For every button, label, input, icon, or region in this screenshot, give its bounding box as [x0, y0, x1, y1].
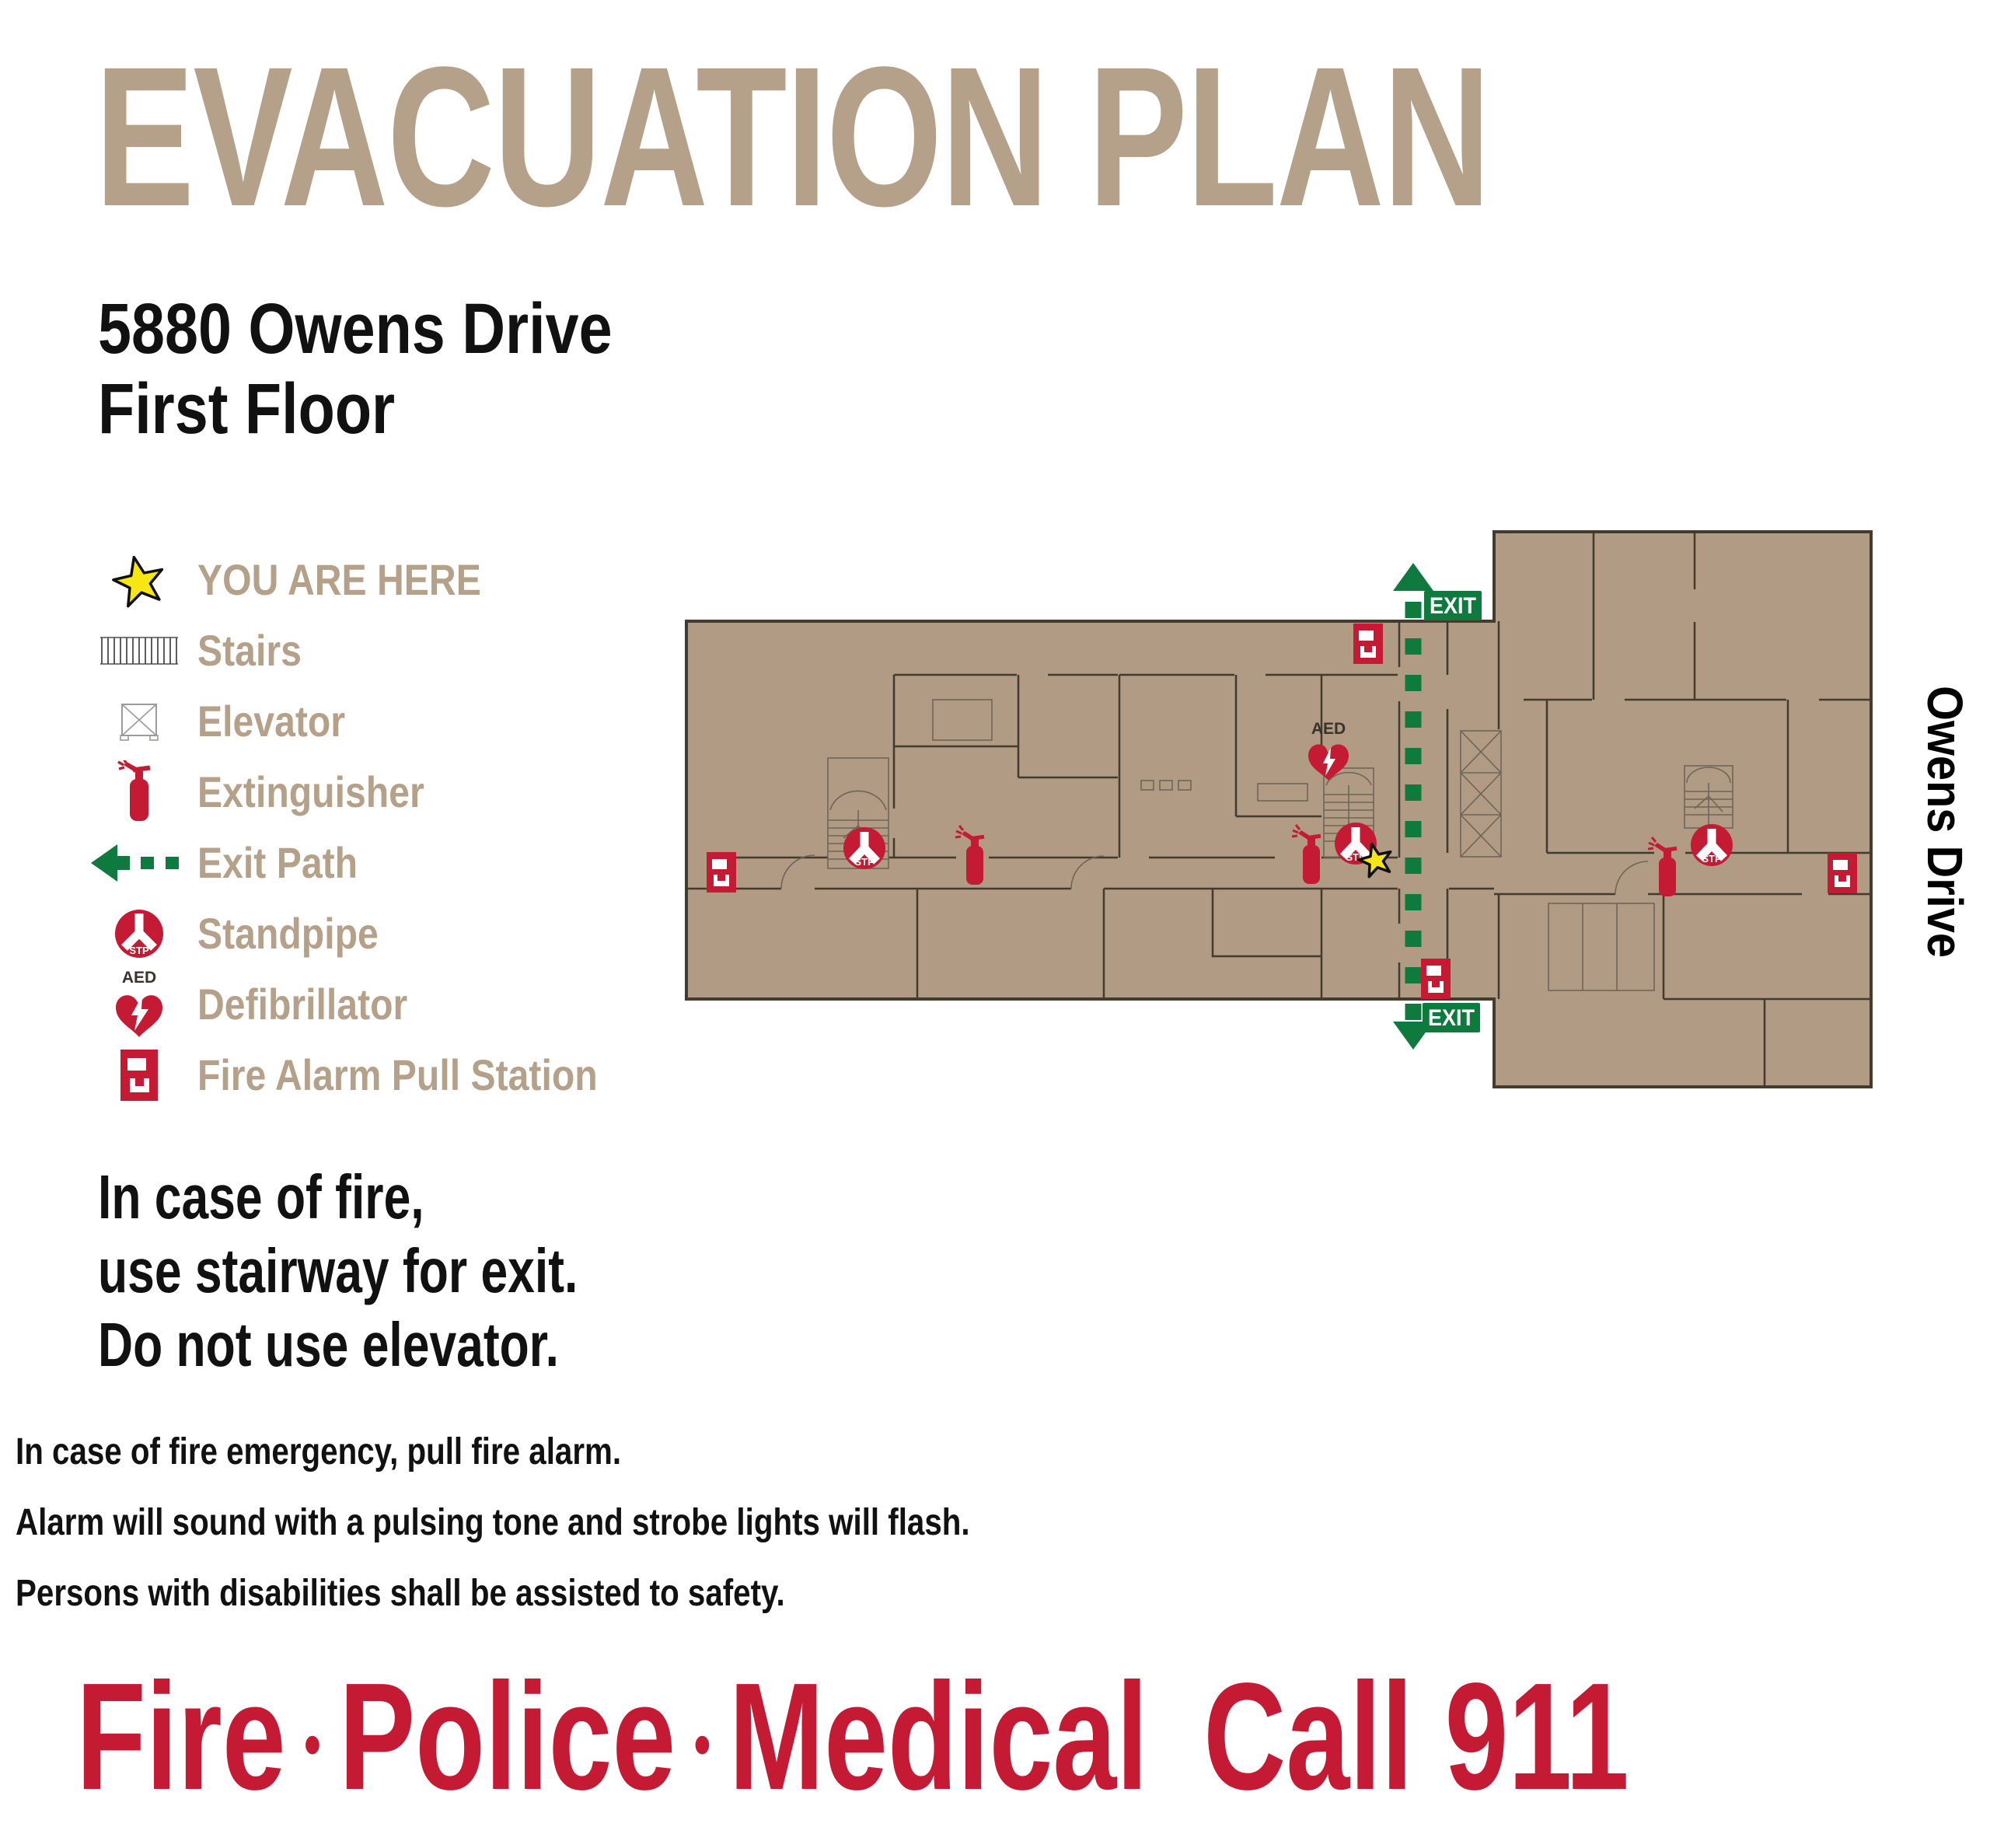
evacuation-plan-poster: EVACUATION PLAN 5880 Owens Drive First F… [0, 0, 1990, 1848]
building-outline [686, 532, 1871, 1087]
exit-sign: EXIT [1423, 1003, 1480, 1032]
extinguisher-icon [81, 760, 197, 824]
exit-path-icon [81, 843, 197, 883]
exit-sign-label: EXIT [1430, 593, 1476, 619]
address-line1: 5880 Owens Drive [98, 289, 613, 369]
legend-label: Exit Path [197, 841, 358, 885]
legend-label: Elevator [197, 700, 345, 743]
exit-sign: EXIT [1424, 591, 1482, 620]
headline-line: Do not use elevator. [98, 1308, 559, 1382]
aed-label: AED [1311, 720, 1346, 738]
standpipe-icon: STP [81, 907, 197, 960]
address-block: 5880 Owens Drive First Floor [98, 289, 710, 449]
headline-line: use stairway for exit. [98, 1234, 578, 1308]
aed-label: AED [122, 969, 156, 987]
safety-notes: In case of fire emergency, pull fire ala… [16, 1417, 1151, 1629]
legend-label: Stairs [197, 629, 302, 672]
stp-label: STP [1702, 853, 1722, 865]
legend-label: YOU ARE HERE [197, 558, 481, 602]
legend-row-elevator: Elevator [81, 686, 662, 756]
emergency-banner: Fire•Police•MedicalCall 911 [76, 1661, 1990, 1813]
banner-police: Police [339, 1651, 676, 1822]
elevator-icon [81, 701, 197, 742]
banner-call-911: Call 911 [1203, 1651, 1629, 1822]
legend-row-exit-path: Exit Path [81, 827, 662, 898]
fire-alarm-pull-station-icon [1828, 853, 1857, 893]
banner-fire: Fire [76, 1651, 286, 1822]
fire-instruction-headline: In case of fire, use stairway for exit. … [98, 1160, 713, 1382]
legend-label: Fire Alarm Pull Station [197, 1053, 598, 1097]
standpipe-icon: STP [1691, 824, 1733, 866]
fire-alarm-pull-station-icon [81, 1050, 197, 1101]
banner-medical: Medical [729, 1651, 1148, 1822]
standpipe-icon: STP [843, 827, 885, 869]
owens-drive-label: Owens Drive [1917, 686, 1973, 958]
legend-label: Extinguisher [197, 770, 424, 814]
fire-alarm-pull-station-icon [1421, 959, 1451, 999]
note-line: In case of fire emergency, pull fire ala… [16, 1417, 621, 1487]
legend-row-extinguisher: Extinguisher [81, 756, 662, 827]
legend-row-you-are-here: YOU ARE HERE [81, 544, 662, 615]
stp-label: STP [854, 856, 875, 868]
exit-path-arrow-up [1393, 563, 1433, 591]
legend-row-fire-alarm-pull-station: Fire Alarm Pull Station [81, 1039, 662, 1110]
page-title: EVACUATION PLAN [95, 37, 1955, 236]
legend-label: Defibrillator [197, 983, 407, 1026]
stp-label: STP [129, 945, 149, 956]
bullet-separator: • [694, 1709, 711, 1780]
page-title-text: EVACUATION PLAN [95, 37, 1489, 236]
bullet-separator: • [304, 1709, 321, 1780]
legend-row-standpipe: STP Standpipe [81, 898, 662, 969]
headline-line: In case of fire, [98, 1160, 424, 1234]
fire-alarm-pull-station-icon [707, 852, 736, 893]
exit-sign-label: EXIT [1428, 1005, 1475, 1031]
floor-plan-svg: EXIT EXIT STP [669, 498, 1990, 1135]
legend-row-defibrillator: AED Defibrillator [81, 969, 662, 1039]
you-are-here-star-icon [81, 550, 197, 610]
note-line: Alarm will sound with a pulsing tone and… [16, 1487, 970, 1558]
legend: YOU ARE HERE Sta [81, 544, 662, 1110]
floor-plan: EXIT EXIT STP [669, 498, 1990, 1135]
address-line2: First Floor [98, 369, 395, 449]
legend-label: Standpipe [197, 912, 379, 955]
note-line: Persons with disabilities shall be assis… [16, 1558, 785, 1629]
legend-row-stairs: Stairs [81, 615, 662, 686]
fire-alarm-pull-station-icon [1353, 624, 1383, 664]
defibrillator-icon: AED [81, 969, 197, 1040]
stairs-icon [81, 633, 197, 669]
